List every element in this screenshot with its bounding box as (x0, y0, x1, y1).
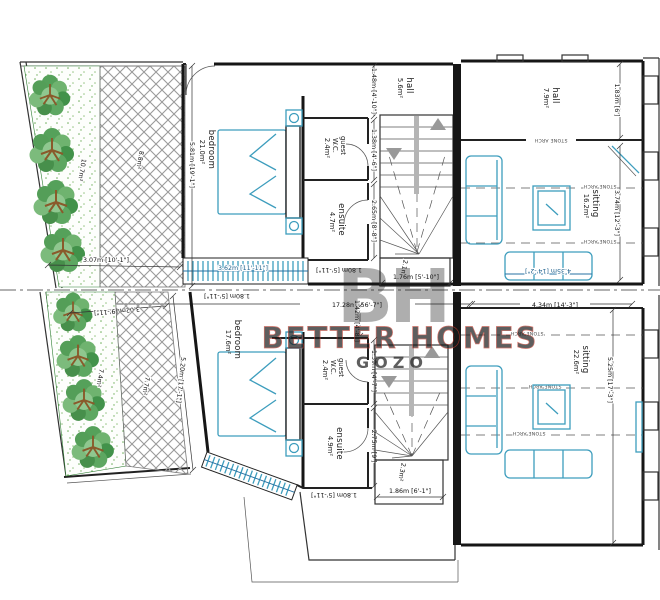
dim-label: 1.48m [4'-10"] (370, 68, 377, 114)
dim-label: 5.25m [17'-3"] (606, 357, 613, 403)
watermark-subtext: GOZO (356, 353, 428, 372)
dim-label: 1.38m [4'-6"] (370, 129, 377, 171)
stone-arch-label: STONE ARCH (584, 238, 617, 244)
dim-label: 1.80m [5'-11"] (204, 292, 250, 299)
dim-label: 1.86m [6'-1"] (389, 488, 431, 495)
party-wall (453, 64, 461, 286)
dim-label: 2.75m [9'] (370, 430, 377, 463)
dim-label: 2.65m [8'-8"] (370, 200, 377, 242)
stone-arch-label: STONE ARCH (584, 183, 617, 189)
dim-label: 5.81m [19'-1"] (188, 142, 195, 188)
dim-label: 1.80m [5'-11"] (311, 491, 357, 498)
watermark-text: BETTER HOMES (262, 321, 539, 355)
dim-label: 3.74m [12'-3"] (613, 190, 620, 236)
stone-arch-label: STONE ARCH (535, 137, 568, 143)
stone-arch-label: STONE ARCH (513, 430, 546, 436)
dim-label: 3.07m [10'-1"] (83, 257, 129, 264)
dim-label: 4.35m [14'-2"] (525, 267, 571, 274)
upper-bedroom-window: 3.62m [11'-11"] (183, 258, 308, 284)
floor-plan-canvas: 10.7m² 8.8m² 3.07m [10'-1"] 3.62m [11'-1… (0, 0, 660, 600)
floor-plan-page: 10.7m² 8.8m² 3.07m [10'-1"] 3.62m [11'-1… (0, 0, 660, 600)
dim-label: 1.83m [6'] (613, 84, 620, 117)
dim-label: 3.62m [11'-11"] (218, 265, 268, 272)
handrail (414, 116, 419, 194)
